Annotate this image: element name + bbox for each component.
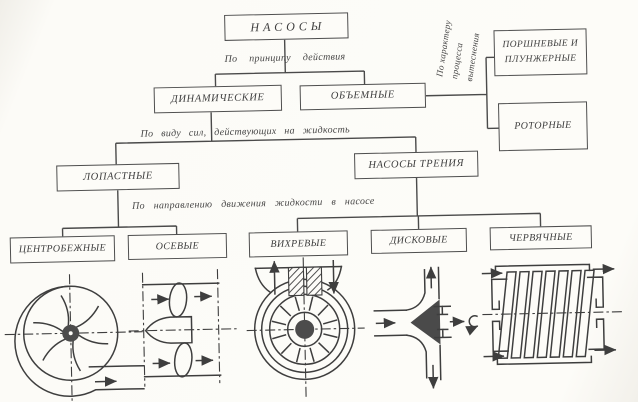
box-disk: ДИСКОВЫЕ (371, 228, 467, 254)
scanned-page: НАСОСЫ ДИНАМИЧЕСКИЕ ОБЪЕМНЫЕ ПОРШНЕВЫЕ И… (0, 0, 638, 402)
box-piston-plunger: ПОРШНЕВЫЕ И ПЛУНЖЕРНЫЕ (493, 28, 587, 76)
disk-pump-schematic (369, 261, 484, 396)
box-worm: ЧЕРВЯЧНЫЕ (490, 225, 592, 250)
box-centrifugal: ЦЕНТРОБЕЖНЫЕ (10, 235, 116, 263)
box-rotary: РОТОРНЫЕ (498, 101, 588, 151)
box-dynamic: ДИНАМИЧЕСКИЕ (154, 85, 283, 114)
root-box-pumps: НАСОСЫ (224, 12, 349, 41)
box-vane: ЛОПАСТНЫЕ (56, 163, 180, 192)
vortex-pump-schematic (245, 256, 366, 399)
worm-pump-schematic (481, 254, 624, 382)
box-vortex: ВИХРЕВЫЕ (249, 230, 349, 257)
box-volumetric: ОБЪЕМНЫЕ (300, 83, 426, 111)
centrifugal-pump-schematic (3, 272, 144, 402)
pump-classification-diagram: НАСОСЫ ДИНАМИЧЕСКИЕ ОБЪЕМНЫЕ ПОРШНЕВЫЕ И… (0, 0, 638, 402)
box-friction-pumps: НАСОСЫ ТРЕНИЯ (354, 151, 479, 180)
axial-pump-schematic (127, 267, 240, 391)
box-axial: ОСЕВЫЕ (128, 233, 228, 260)
